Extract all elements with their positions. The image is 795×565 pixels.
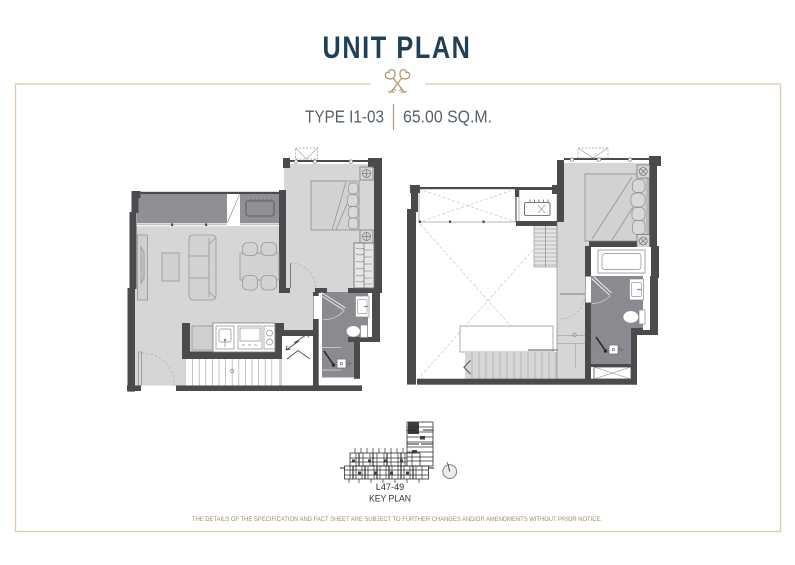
svg-text:65.00 SQ.M.: 65.00 SQ.M. [403,107,492,127]
svg-text:KEY PLAN: KEY PLAN [369,494,411,504]
svg-text:UNIT PLAN: UNIT PLAN [323,29,472,65]
svg-text:THE DETAILS OF THE SPECIFICATI: THE DETAILS OF THE SPECIFICATION AND FAC… [192,516,602,523]
svg-text:TYPE I1-03: TYPE I1-03 [305,107,384,127]
svg-text:L47-49: L47-49 [376,482,405,492]
